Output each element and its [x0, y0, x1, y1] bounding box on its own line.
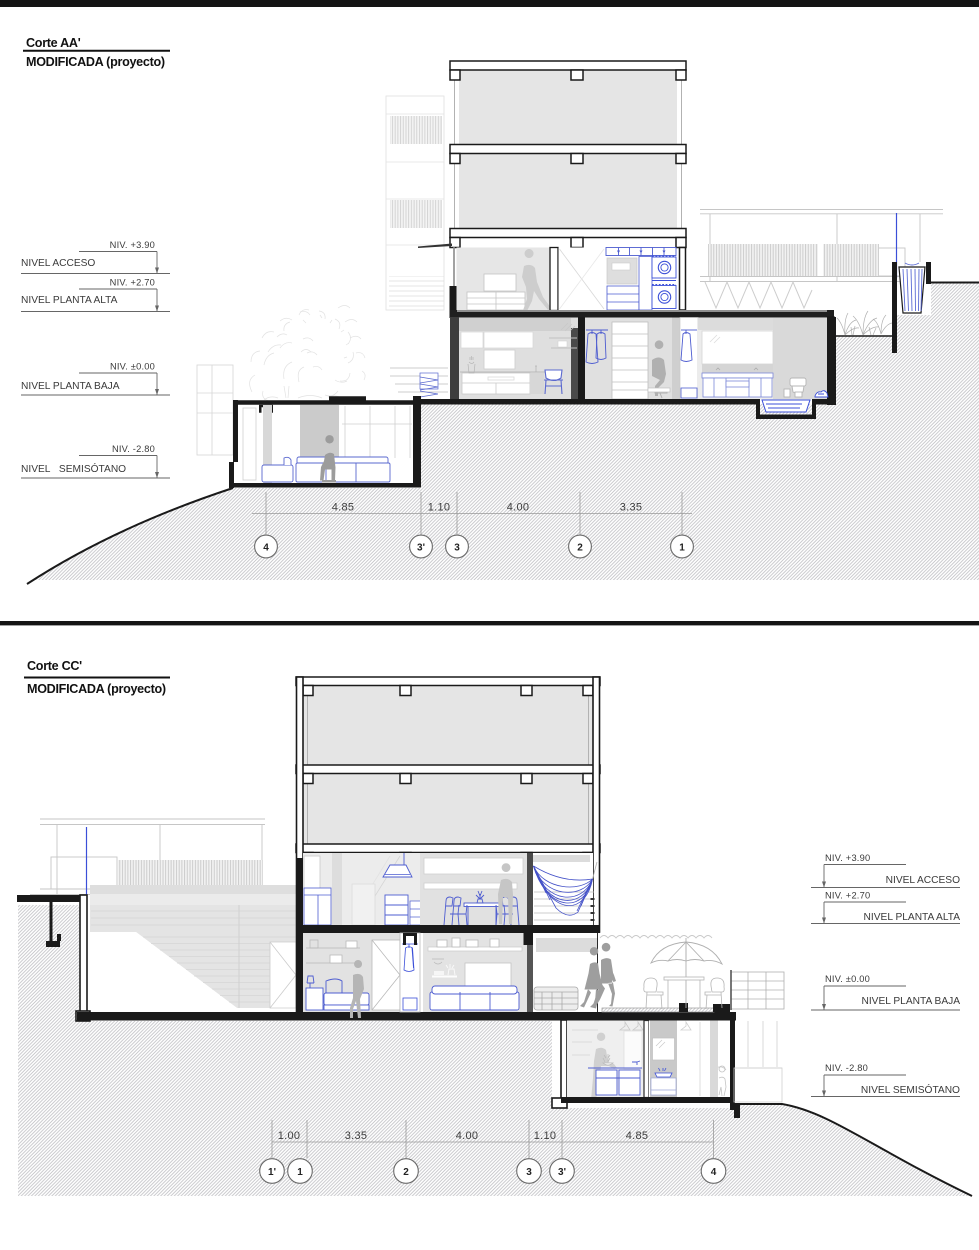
- svg-text:1: 1: [679, 543, 685, 554]
- svg-text:2: 2: [403, 1167, 409, 1178]
- svg-text:NIVEL SEMISÓTANO: NIVEL SEMISÓTANO: [21, 462, 126, 475]
- svg-text:1.10: 1.10: [534, 1130, 557, 1142]
- svg-text:NIVEL SEMISÓTANO: NIVEL SEMISÓTANO: [861, 1083, 960, 1096]
- svg-text:4: 4: [263, 543, 269, 554]
- svg-text:Corte CC': Corte CC': [27, 659, 82, 673]
- svg-text:1': 1': [268, 1167, 276, 1178]
- svg-text:NIV. +3.90: NIV. +3.90: [110, 240, 155, 250]
- svg-text:NIVEL PLANTA BAJA: NIVEL PLANTA BAJA: [861, 996, 960, 1007]
- svg-text:3: 3: [454, 543, 460, 554]
- svg-text:1.00: 1.00: [278, 1130, 301, 1142]
- svg-text:3.35: 3.35: [345, 1130, 368, 1142]
- svg-text:3': 3': [558, 1167, 566, 1178]
- svg-text:4: 4: [711, 1167, 717, 1178]
- svg-text:1.10: 1.10: [428, 502, 451, 514]
- svg-text:NIV. +2.70: NIV. +2.70: [825, 891, 870, 901]
- svg-text:NIVEL PLANTA BAJA: NIVEL PLANTA BAJA: [21, 381, 120, 392]
- svg-text:MODIFICADA (proyecto): MODIFICADA (proyecto): [27, 682, 166, 696]
- svg-text:3.35: 3.35: [620, 502, 643, 514]
- svg-text:NIV. ±0.00: NIV. ±0.00: [825, 974, 870, 984]
- svg-text:Corte AA': Corte AA': [26, 36, 81, 50]
- svg-text:NIV. ±0.00: NIV. ±0.00: [110, 362, 155, 372]
- svg-text:MODIFICADA (proyecto): MODIFICADA (proyecto): [26, 55, 165, 69]
- svg-text:NIV. +2.70: NIV. +2.70: [110, 278, 155, 288]
- svg-text:NIVEL ACCESO: NIVEL ACCESO: [21, 258, 95, 269]
- svg-text:NIV. -2.80: NIV. -2.80: [112, 444, 155, 454]
- svg-text:NIV. -2.80: NIV. -2.80: [825, 1063, 868, 1073]
- svg-text:NIVEL PLANTA ALTA: NIVEL PLANTA ALTA: [21, 295, 118, 306]
- svg-text:4.85: 4.85: [332, 502, 355, 514]
- svg-text:4.00: 4.00: [456, 1130, 479, 1142]
- svg-text:2: 2: [577, 543, 583, 554]
- svg-text:1: 1: [297, 1167, 303, 1178]
- svg-text:NIVEL PLANTA ALTA: NIVEL PLANTA ALTA: [864, 912, 961, 923]
- svg-text:4.00: 4.00: [507, 502, 530, 514]
- svg-text:3: 3: [526, 1167, 532, 1178]
- svg-text:4.85: 4.85: [626, 1130, 649, 1142]
- svg-text:3': 3': [417, 543, 425, 554]
- svg-text:NIV. +3.90: NIV. +3.90: [825, 853, 870, 863]
- svg-text:NIVEL ACCESO: NIVEL ACCESO: [886, 875, 960, 886]
